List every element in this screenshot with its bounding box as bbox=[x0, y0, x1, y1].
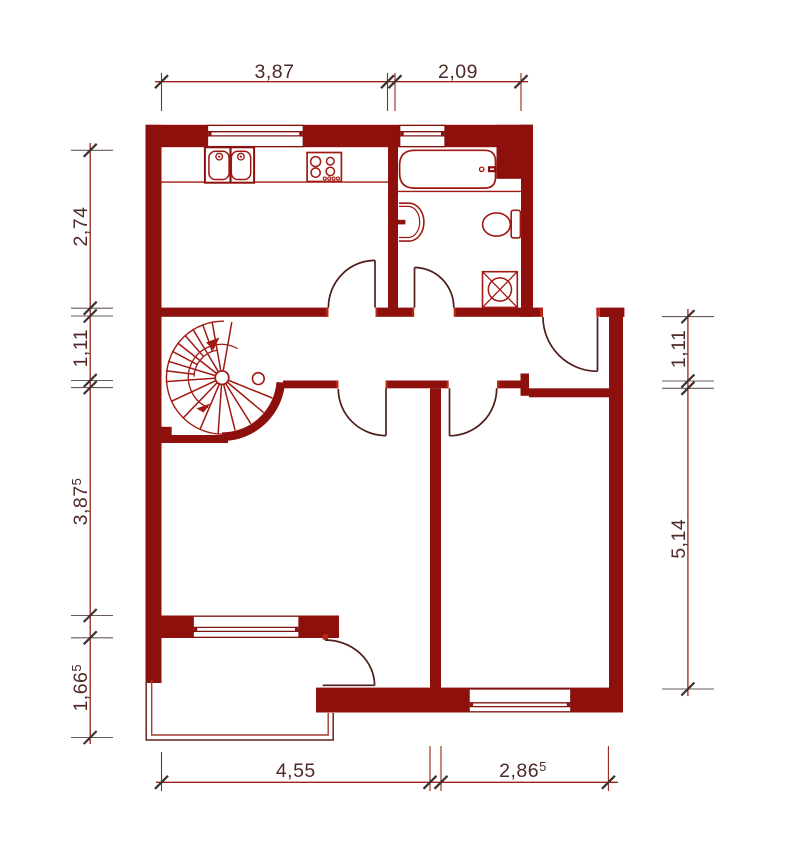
svg-text:2,74: 2,74 bbox=[70, 207, 92, 247]
svg-text:2,865: 2,865 bbox=[499, 759, 547, 782]
svg-text:3,875: 3,875 bbox=[69, 478, 92, 526]
svg-text:1,11: 1,11 bbox=[70, 329, 92, 368]
svg-text:1,11: 1,11 bbox=[668, 330, 690, 369]
svg-text:3,87: 3,87 bbox=[255, 61, 295, 83]
svg-text:5,14: 5,14 bbox=[668, 519, 690, 559]
svg-text:2,09: 2,09 bbox=[438, 61, 478, 83]
svg-text:1,665: 1,665 bbox=[69, 664, 92, 712]
svg-text:4,55: 4,55 bbox=[276, 760, 316, 782]
